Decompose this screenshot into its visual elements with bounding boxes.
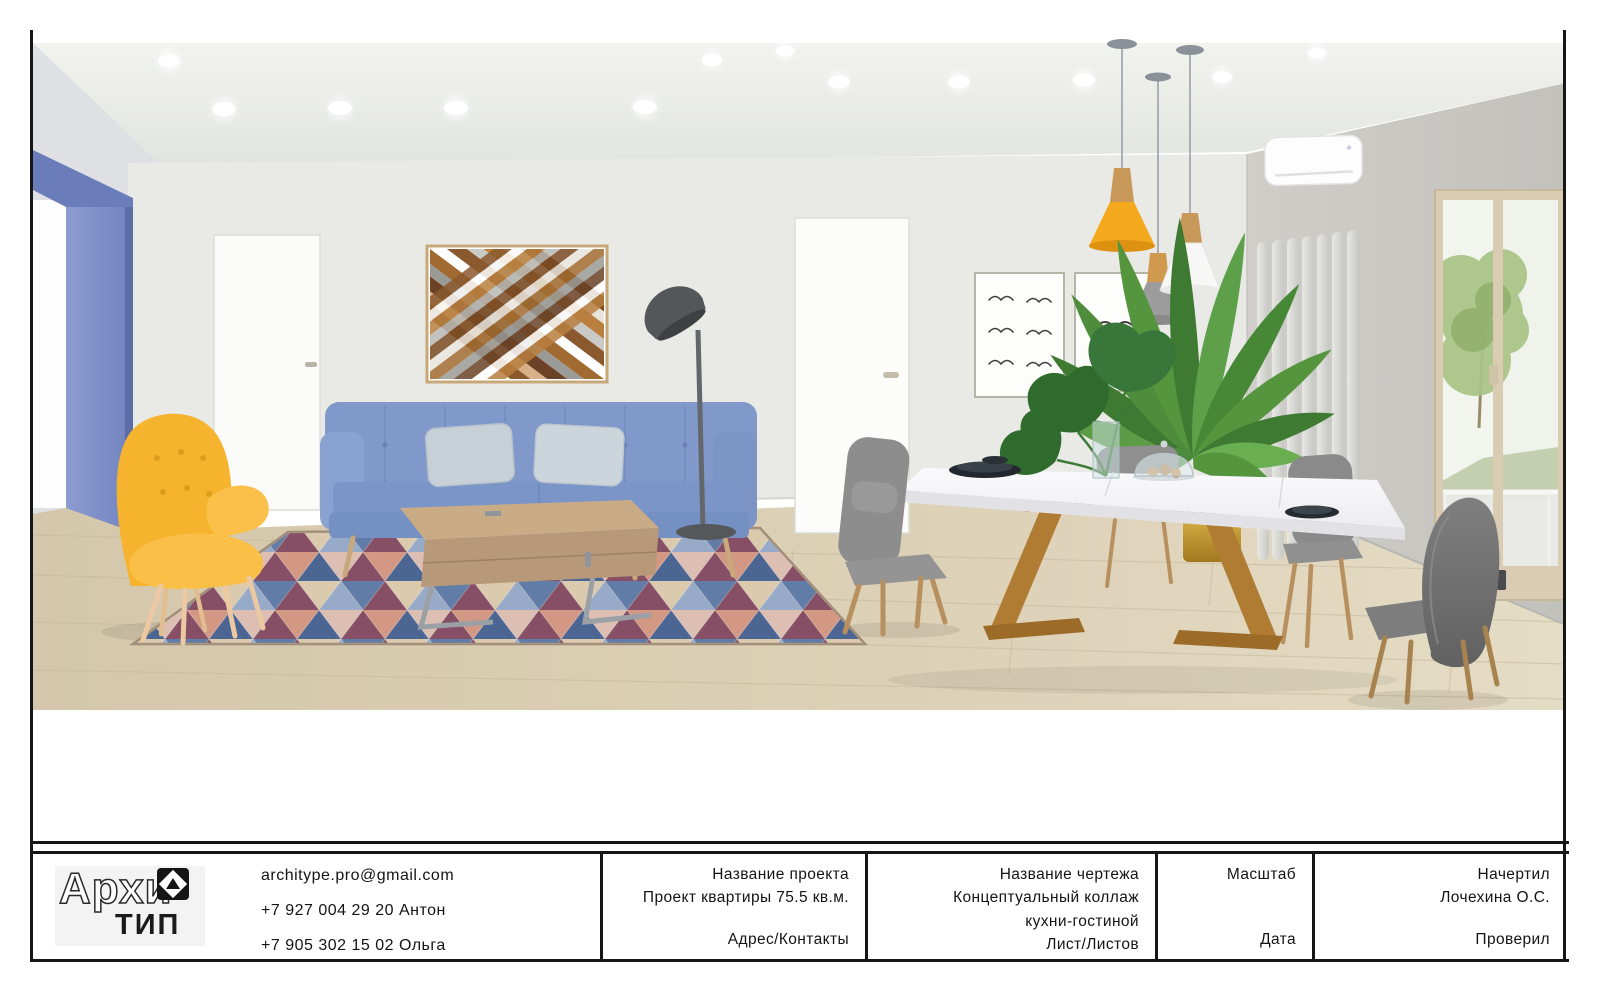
project-name-value: Проект квартиры 75.5 кв.м. (615, 886, 849, 909)
contact-phone-1: +7 927 004 29 20 Антон (261, 899, 454, 923)
title-block-company-cell: Архи ТИП architype.pro@gmail.com +7 927 … (33, 854, 600, 959)
address-contacts-label: Адрес/Контакты (615, 928, 849, 951)
sheet-count-label: Лист/Листов (880, 933, 1139, 956)
drawing-sheet: Архи ТИП architype.pro@gmail.com +7 927 … (0, 0, 1600, 996)
title-block-author-cell: Начертил Лочехина О.С. Проверил (1312, 854, 1566, 959)
project-name-label: Название проекта (615, 863, 849, 886)
sheet-side-borders (30, 30, 1566, 962)
contact-phone-2: +7 905 302 15 02 Ольга (261, 934, 454, 958)
checked-by-label: Проверил (1327, 928, 1550, 951)
date-label: Дата (1170, 928, 1296, 951)
diamond-triangle-logo-icon (157, 868, 189, 900)
drawing-frame-bottom-line (30, 841, 1569, 844)
drawn-by-value: Лочехина О.С. (1327, 886, 1550, 909)
company-logo: Архи ТИП (55, 866, 205, 946)
drawing-name-value-1: Концептуальный коллаж (880, 886, 1139, 909)
logo-text-solid: ТИП (115, 904, 180, 948)
title-block-project-cell: Название проекта Проект квартиры 75.5 кв… (600, 854, 865, 959)
drawing-name-label: Название чертежа (880, 863, 1139, 886)
scale-label: Масштаб (1170, 863, 1296, 886)
title-block: Архи ТИП architype.pro@gmail.com +7 927 … (33, 854, 1566, 959)
title-block-scale-cell: Масштаб Дата (1155, 854, 1312, 959)
drawing-name-value-2: кухни-гостиной (880, 910, 1139, 933)
contact-info: architype.pro@gmail.com +7 927 004 29 20… (261, 864, 454, 969)
title-block-drawing-cell: Название чертежа Концептуальный коллаж к… (865, 854, 1155, 959)
contact-email: architype.pro@gmail.com (261, 864, 454, 888)
drawn-by-label: Начертил (1327, 863, 1550, 886)
